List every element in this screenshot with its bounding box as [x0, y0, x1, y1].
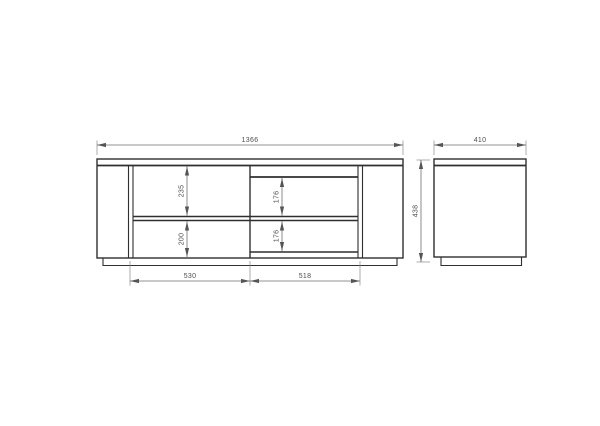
- dim-label-right-width: 518: [299, 273, 312, 280]
- side-view-outline: [434, 159, 526, 257]
- drawing-page: 1366 410 438 235: [0, 0, 600, 426]
- dimension-overall-height: 438: [413, 160, 431, 262]
- dim-label-left-width: 530: [184, 273, 197, 280]
- dimension-bottom-widths: 530 518: [130, 261, 360, 286]
- dim-label-left-lower: 200: [179, 233, 186, 246]
- dim-label-overall-height: 438: [413, 205, 420, 218]
- dim-label-overall-width: 1366: [242, 137, 259, 144]
- dimension-overall-width: 1366: [97, 137, 403, 155]
- front-view: [97, 159, 403, 266]
- side-plinth-outline: [441, 257, 522, 266]
- furniture-dimension-drawing: 1366 410 438 235: [0, 0, 600, 426]
- dimension-depth: 410: [434, 137, 526, 155]
- dim-label-right-upper: 176: [274, 191, 281, 204]
- dim-label-depth: 410: [474, 137, 487, 144]
- side-view: [434, 159, 526, 266]
- dim-label-left-upper: 235: [179, 185, 186, 198]
- dim-label-right-lower: 176: [274, 230, 281, 243]
